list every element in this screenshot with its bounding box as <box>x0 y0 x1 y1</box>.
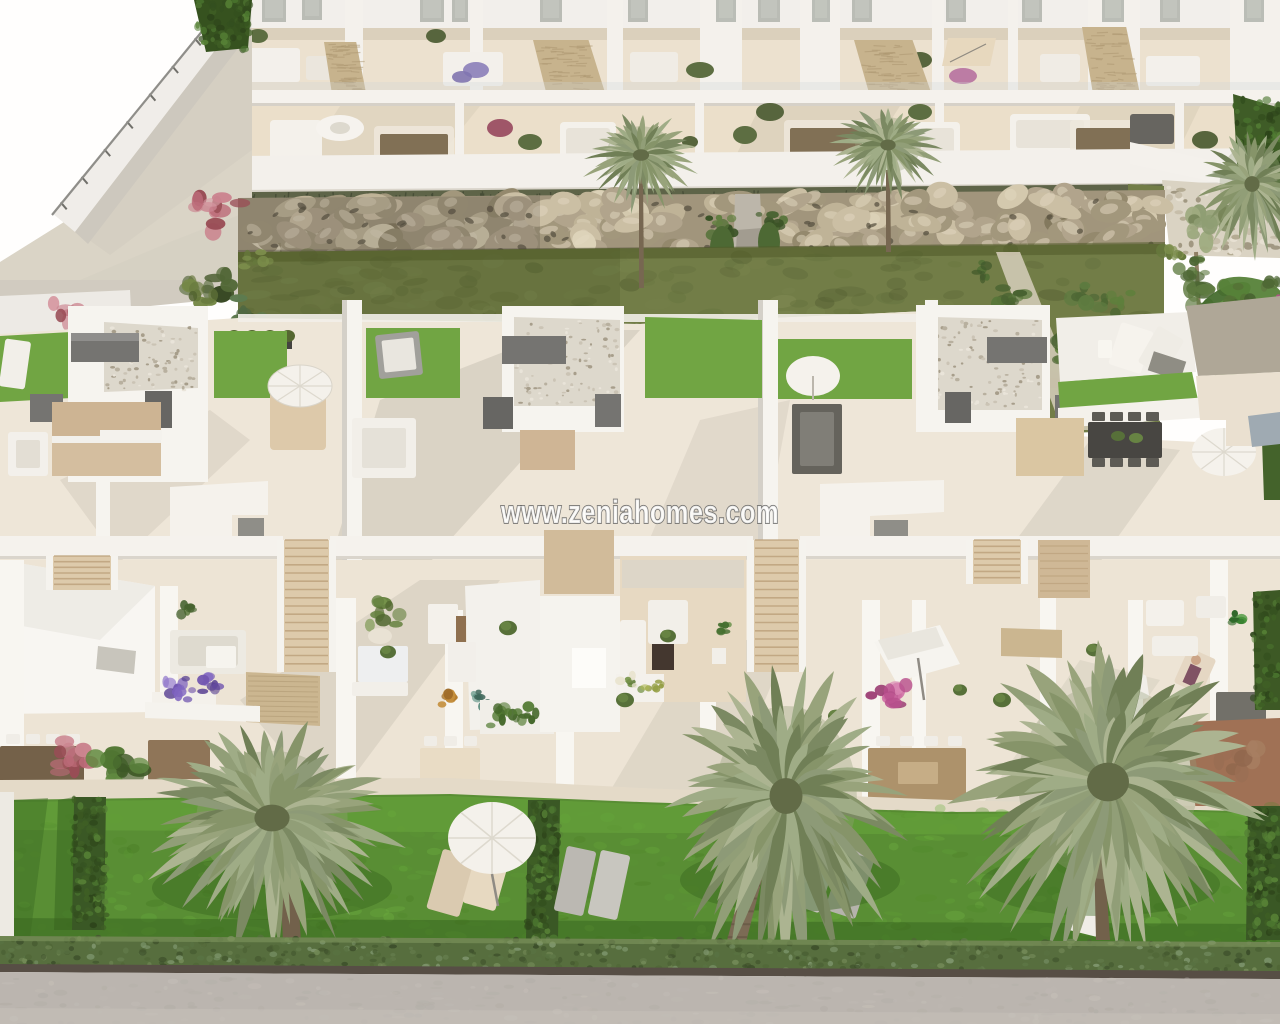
svg-text:www.zeniahomes.com: www.zeniahomes.com <box>500 494 779 530</box>
